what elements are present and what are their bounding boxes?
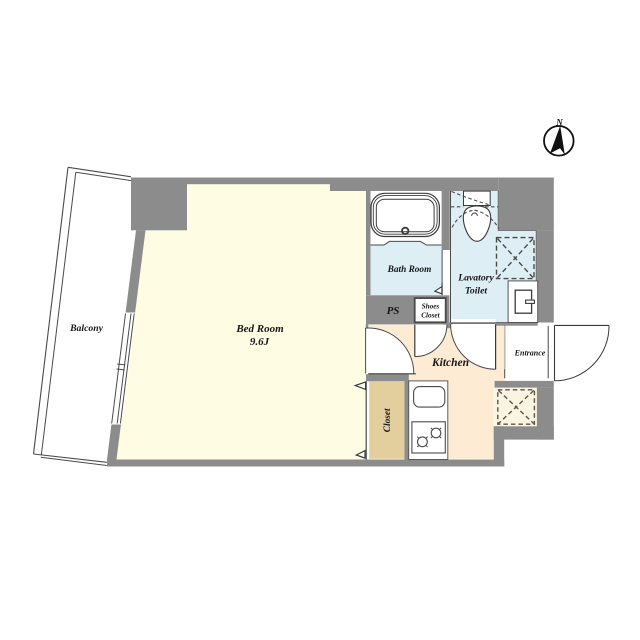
- svg-text:Lavatory: Lavatory: [457, 273, 494, 284]
- svg-text:Closet: Closet: [383, 408, 393, 432]
- svg-text:Kitchen: Kitchen: [431, 357, 469, 369]
- svg-text:Entrance: Entrance: [514, 348, 546, 357]
- svg-text:Bath Room: Bath Room: [387, 265, 432, 275]
- svg-text:Shoes: Shoes: [422, 303, 440, 311]
- svg-text:Balcony: Balcony: [69, 323, 104, 334]
- svg-text:PS: PS: [387, 305, 400, 317]
- svg-text:9.6J: 9.6J: [250, 336, 270, 348]
- svg-text:Closet: Closet: [421, 312, 440, 320]
- svg-text:Toilet: Toilet: [465, 286, 488, 297]
- svg-text:Bed Room: Bed Room: [235, 323, 284, 335]
- svg-text:N: N: [555, 117, 563, 127]
